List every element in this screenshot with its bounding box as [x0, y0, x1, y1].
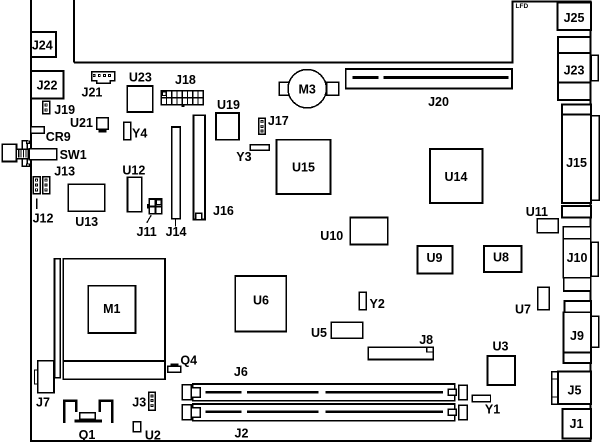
svg-text:U9: U9 — [427, 251, 443, 265]
svg-text:U7: U7 — [515, 303, 531, 317]
svg-text:J13: J13 — [54, 165, 75, 179]
svg-text:U6: U6 — [253, 294, 269, 308]
svg-text:J5: J5 — [568, 384, 582, 398]
svg-text:J17: J17 — [268, 114, 289, 128]
svg-text:U15: U15 — [292, 161, 315, 175]
svg-text:U14: U14 — [445, 170, 468, 184]
svg-text:U13: U13 — [75, 215, 98, 229]
svg-text:J6: J6 — [234, 365, 248, 379]
svg-text:U10: U10 — [320, 229, 343, 243]
svg-text:J18: J18 — [175, 73, 196, 87]
svg-text:U23: U23 — [129, 71, 152, 85]
svg-text:U8: U8 — [493, 251, 509, 265]
svg-text:Y1: Y1 — [485, 403, 500, 417]
svg-text:J1: J1 — [570, 417, 584, 431]
svg-text:J10: J10 — [567, 251, 588, 265]
svg-text:J20: J20 — [428, 95, 449, 109]
svg-text:U5: U5 — [311, 326, 327, 340]
svg-text:J9: J9 — [570, 329, 584, 343]
svg-text:U12: U12 — [122, 163, 145, 177]
svg-text:Y3: Y3 — [236, 150, 251, 164]
svg-text:Y4: Y4 — [132, 127, 147, 141]
svg-text:J12: J12 — [33, 212, 54, 226]
svg-text:SW1: SW1 — [60, 148, 87, 162]
svg-text:Y2: Y2 — [370, 297, 385, 311]
svg-text:U21: U21 — [70, 116, 93, 130]
svg-text:U2: U2 — [145, 429, 161, 443]
svg-text:J3: J3 — [132, 396, 146, 410]
svg-text:M3: M3 — [299, 83, 316, 97]
svg-text:J22: J22 — [37, 79, 58, 93]
svg-text:J23: J23 — [564, 64, 585, 78]
svg-text:CR9: CR9 — [46, 130, 71, 144]
svg-text:LFD: LFD — [516, 3, 529, 10]
svg-text:M1: M1 — [103, 302, 120, 316]
svg-text:J21: J21 — [82, 86, 103, 100]
svg-text:U19: U19 — [217, 98, 240, 112]
svg-text:J24: J24 — [32, 39, 53, 53]
svg-text:U3: U3 — [493, 340, 509, 354]
svg-text:J8: J8 — [419, 333, 433, 347]
svg-text:J11: J11 — [137, 225, 157, 239]
svg-text:Q4: Q4 — [180, 354, 197, 368]
svg-text:J19: J19 — [54, 103, 75, 117]
svg-text:U11: U11 — [526, 205, 548, 219]
svg-text:J2: J2 — [235, 427, 249, 441]
svg-text:J25: J25 — [564, 11, 585, 25]
svg-text:J7: J7 — [36, 396, 50, 410]
svg-text:J16: J16 — [213, 204, 234, 218]
svg-text:Q1: Q1 — [79, 428, 96, 442]
svg-text:J15: J15 — [566, 156, 587, 170]
svg-text:J14: J14 — [166, 225, 187, 239]
